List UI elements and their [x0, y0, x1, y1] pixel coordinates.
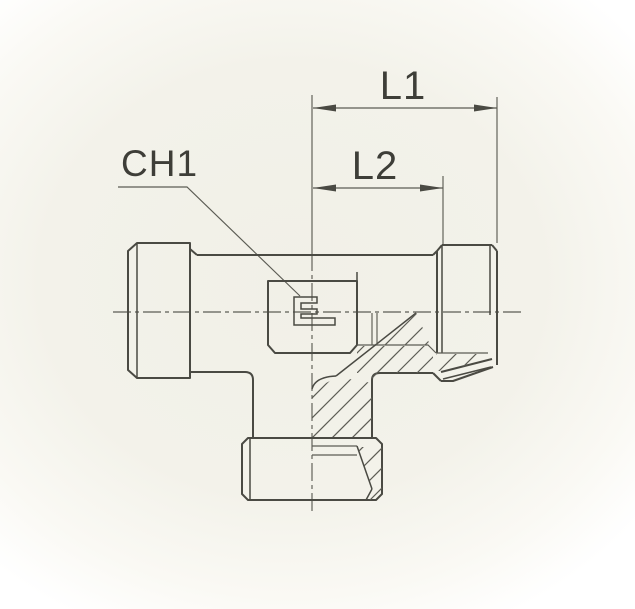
hatch-line [370, 280, 610, 520]
ch1-label: CH1 [121, 143, 198, 184]
right-nut-chamfer-top-right [492, 245, 497, 251]
hatch-line [230, 280, 470, 520]
l2-dimension-label: L2 [352, 144, 399, 188]
dimension-l2: L2 [313, 144, 443, 245]
tee-fitting-technical-drawing: L1 L2 CH1 [0, 0, 635, 609]
hatch-line [330, 280, 570, 520]
hatch-line [350, 280, 590, 520]
hatch-line [170, 280, 410, 520]
left-port [128, 243, 197, 378]
l1-dimension-label: L1 [380, 64, 427, 108]
l1-arrow-left [313, 105, 336, 112]
hatch-line [190, 280, 430, 520]
right-port [433, 245, 497, 381]
section-hatching [170, 280, 610, 520]
l2-arrow-left [313, 185, 336, 192]
hatch-line [210, 280, 450, 520]
hatch-line [290, 280, 530, 520]
ch1-leader-line [118, 187, 300, 296]
hatch-line [270, 280, 510, 520]
scanned-drawing-page: L1 L2 CH1 [0, 0, 635, 609]
bore-fillet-arc [312, 376, 336, 389]
l1-arrow-right [474, 105, 497, 112]
dimension-l1: L1 [313, 64, 497, 243]
body-bottom-left-edge [190, 372, 253, 438]
g-mark [294, 297, 335, 325]
fitting-outline [128, 243, 497, 500]
l2-arrow-right [420, 185, 443, 192]
right-nut-bottom-step [433, 373, 441, 381]
bottom-bore-taper [357, 446, 372, 489]
ch1-callout: CH1 [118, 143, 300, 296]
left-shoulder [190, 249, 197, 255]
body-bottom-right-edge [372, 373, 433, 438]
hatch-line [310, 280, 550, 520]
